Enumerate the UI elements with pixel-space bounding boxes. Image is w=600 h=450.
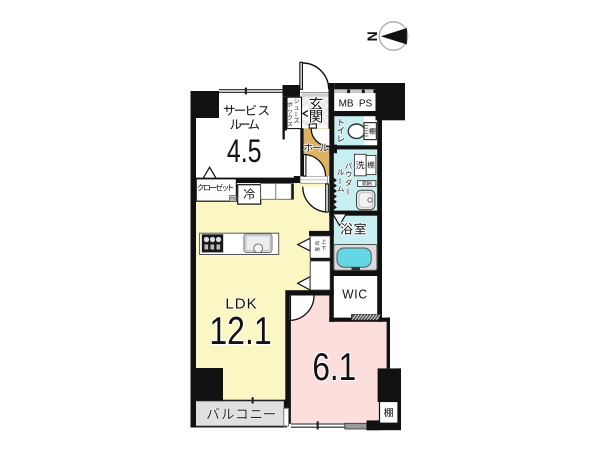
svg-text:WIC: WIC [342, 287, 367, 302]
svg-text:12.1: 12.1 [209, 309, 271, 353]
svg-text:4.5: 4.5 [227, 134, 262, 170]
svg-text:N: N [364, 31, 380, 41]
svg-text:PS: PS [230, 196, 236, 201]
svg-text:6.1: 6.1 [312, 345, 356, 389]
svg-text:PS: PS [359, 99, 373, 110]
svg-text:MB: MB [339, 99, 354, 110]
